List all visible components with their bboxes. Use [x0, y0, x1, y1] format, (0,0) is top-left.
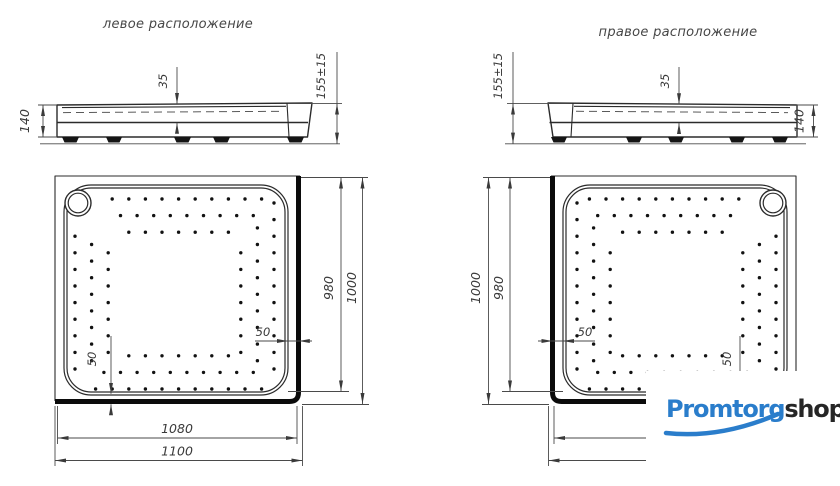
dim-inner-length: 980	[321, 276, 336, 300]
dim-depth-35: 35	[156, 74, 170, 89]
right-side-view: 140 35 155±15	[491, 52, 818, 144]
shower-tray-technical-drawing: левое расположение 140 35	[0, 0, 840, 486]
left-plan-view: 980 1000 1080 1100 50 50	[55, 176, 369, 466]
basin-rim-inner	[566, 188, 784, 392]
anti-slip-dots-right	[575, 197, 777, 390]
drain-right	[760, 190, 786, 216]
dim-outer-width: 1100	[161, 444, 193, 459]
left-drawing-title: левое расположение	[102, 17, 253, 32]
dim-height-140: 140	[792, 109, 807, 133]
dim-outer-length: 1000	[344, 272, 359, 304]
dim-outer-length: 1000	[468, 272, 483, 304]
logo-text-dark: shop	[784, 395, 840, 423]
dim-rim-50-bottom: 50	[720, 352, 734, 367]
dim-inner-width: 1080	[161, 421, 193, 436]
logo-swoosh-icon	[662, 411, 786, 439]
promtorgshop-logo: Promtorgshop	[646, 371, 840, 486]
left-side-view: 140 35 155±15	[17, 52, 342, 144]
dim-inner-length: 980	[491, 276, 506, 300]
tray-feet	[551, 137, 788, 143]
drain-left	[65, 190, 91, 216]
dim-height-140: 140	[17, 109, 32, 133]
left-arrangement-drawing: левое расположение 140 35	[17, 17, 369, 466]
basin-rim-inner	[67, 188, 285, 392]
right-drawing-title: правое расположение	[599, 25, 758, 40]
dim-total-height: 155±15	[491, 53, 505, 99]
dim-rim-50-left: 50	[578, 325, 593, 339]
dim-rim-50-right: 50	[256, 325, 271, 339]
dim-total-height: 155±15	[314, 53, 328, 99]
anti-slip-dots-left	[73, 197, 275, 390]
dim-depth-35: 35	[658, 74, 672, 89]
outer-frame-right	[551, 176, 796, 401]
dim-rim-50-bottom: 50	[85, 352, 99, 367]
tray-feet	[62, 137, 304, 143]
